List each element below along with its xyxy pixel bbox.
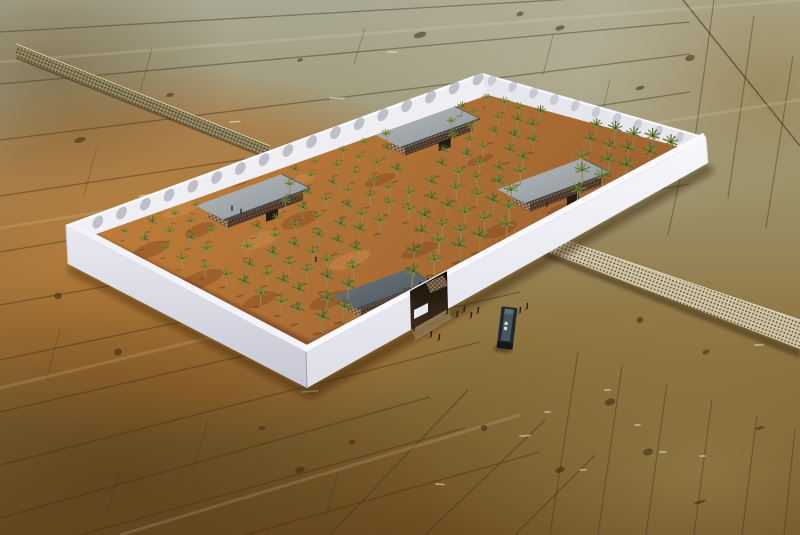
scene-svg bbox=[0, 0, 800, 535]
photo-architectural-model: Photograph of a white-walled architectur… bbox=[0, 0, 800, 535]
